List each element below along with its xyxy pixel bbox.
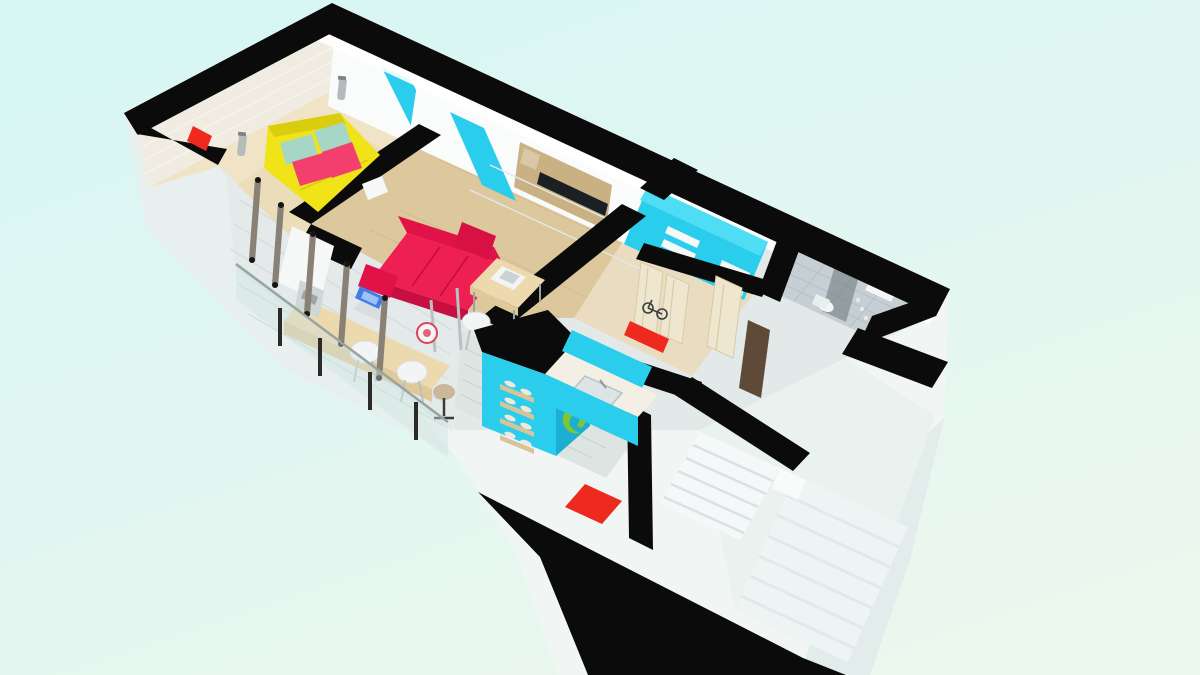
- scene-svg: [0, 0, 1200, 675]
- red-plate: [417, 323, 437, 343]
- floorplan-render: [0, 0, 1200, 675]
